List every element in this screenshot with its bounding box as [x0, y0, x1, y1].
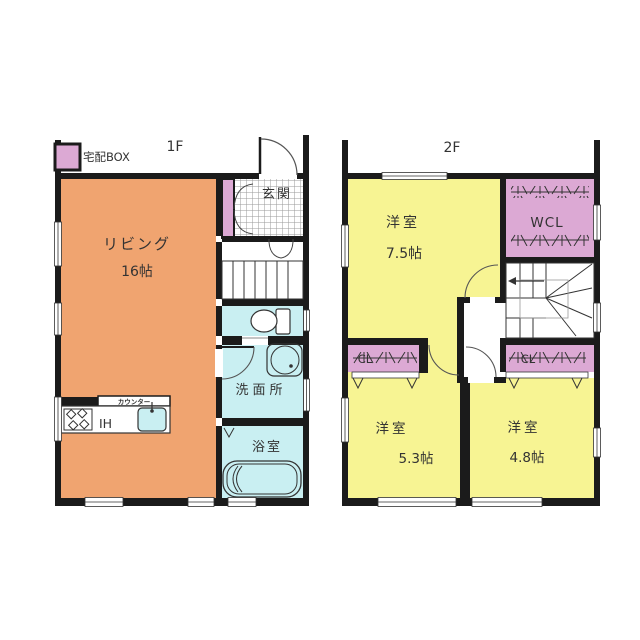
stairs-2f: [506, 263, 594, 338]
bedroom-4-8-size: 4.8帖: [510, 450, 545, 466]
floor1-plan: 1F 宅配BOX: [55, 135, 310, 507]
counter-label: カウンター: [118, 397, 151, 406]
wcl-label: WCL: [530, 215, 563, 231]
window: [85, 498, 123, 507]
washroom: [222, 345, 303, 418]
entrance-label: 玄関: [262, 187, 292, 202]
living-room-size: 16帖: [121, 264, 153, 280]
delivery-box: [55, 144, 80, 170]
window: [55, 222, 62, 266]
bedroom-4-8-label: 洋室: [508, 419, 541, 436]
ih-label: IH: [99, 416, 112, 431]
bedroom-5-3-label: 洋室: [376, 420, 409, 437]
cl-right-label: CL: [521, 352, 536, 366]
living-room: [61, 179, 216, 498]
washroom-label: 洗面所: [235, 383, 286, 398]
front-door: [260, 137, 297, 175]
window: [594, 303, 601, 332]
stairs-1f: [222, 261, 303, 299]
living-room-label: リビング: [103, 235, 171, 253]
window: [594, 205, 601, 240]
floorplan-image: 1F 宅配BOX: [0, 0, 640, 640]
toilet-icon: [251, 309, 290, 334]
window: [378, 498, 456, 507]
floor2-label: 2F: [444, 140, 461, 156]
window: [228, 498, 256, 507]
window: [304, 310, 310, 331]
window: [342, 225, 349, 267]
cl-left-label: CL: [358, 352, 373, 366]
floor1-label: 1F: [167, 139, 184, 155]
shoe-cabinet: [222, 179, 234, 238]
window: [188, 498, 214, 507]
bedroom-4-8: [470, 378, 594, 498]
delivery-box-label: 宅配BOX: [83, 150, 130, 164]
window: [304, 379, 310, 411]
cl-right-track: [506, 372, 588, 378]
bedroom-5-3-size: 5.3帖: [399, 451, 434, 467]
bedroom-7-5-size: 7.5帖: [386, 246, 422, 262]
bedroom-7-5-label: 洋室: [386, 214, 420, 231]
bathroom-label: 浴室: [252, 439, 282, 455]
ih-cooktop-icon: [64, 409, 92, 430]
window: [55, 397, 62, 441]
cl-left-track: [352, 372, 419, 378]
window: [55, 303, 62, 335]
window: [472, 498, 542, 507]
window: [382, 173, 447, 180]
window: [594, 428, 601, 457]
landing: [457, 297, 506, 383]
window: [342, 398, 349, 442]
floor2-plan: 2F: [342, 140, 601, 507]
